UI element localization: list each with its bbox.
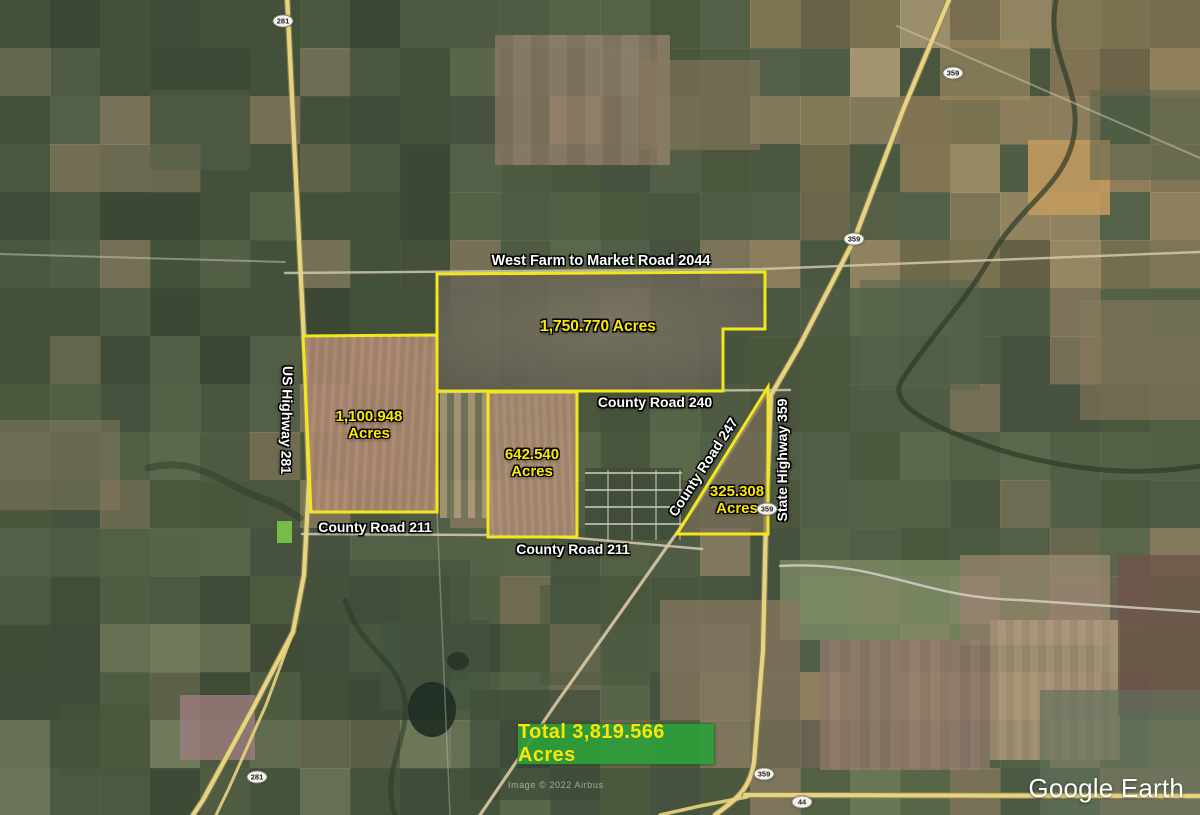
road-label-county-road-211-south: County Road 211 — [516, 541, 630, 557]
map-labels: West Farm to Market Road 2044County Road… — [0, 0, 1200, 815]
route-shield-359: 359 — [754, 768, 775, 781]
east-parcel-acres-label: 325.308Acres — [710, 483, 764, 518]
road-label-county-road-240: County Road 240 — [598, 394, 712, 410]
route-shield-44: 44 — [792, 796, 813, 809]
google-earth-logo: Google Earth — [1028, 773, 1184, 804]
road-label-us-highway-281: US Highway 281 — [278, 366, 296, 474]
route-shield-359: 359 — [943, 67, 964, 80]
total-acres-text: Total 3,819.566 Acres — [518, 721, 714, 767]
north-parcel-acres-label: 1,750.770 Acres — [540, 318, 656, 336]
route-shield-359: 359 — [844, 233, 865, 246]
satellite-map[interactable]: West Farm to Market Road 2044County Road… — [0, 0, 1200, 815]
road-label-state-highway-359: State Highway 359 — [774, 399, 790, 522]
imagery-attribution: Image © 2022 Airbus — [508, 780, 604, 790]
route-shield-281: 281 — [247, 771, 268, 784]
route-shield-281: 281 — [273, 15, 294, 28]
west-parcel-acres-label: 1,100.948Acres — [336, 408, 403, 443]
route-shield-359: 359 — [757, 503, 778, 516]
middle-parcel-acres-label: 642.540Acres — [505, 446, 559, 481]
road-label-county-road-211-west: County Road 211 — [318, 519, 432, 535]
total-acres-badge: Total 3,819.566 Acres — [518, 724, 714, 764]
road-label-west-farm-to-market-road-2044: West Farm to Market Road 2044 — [492, 253, 711, 269]
